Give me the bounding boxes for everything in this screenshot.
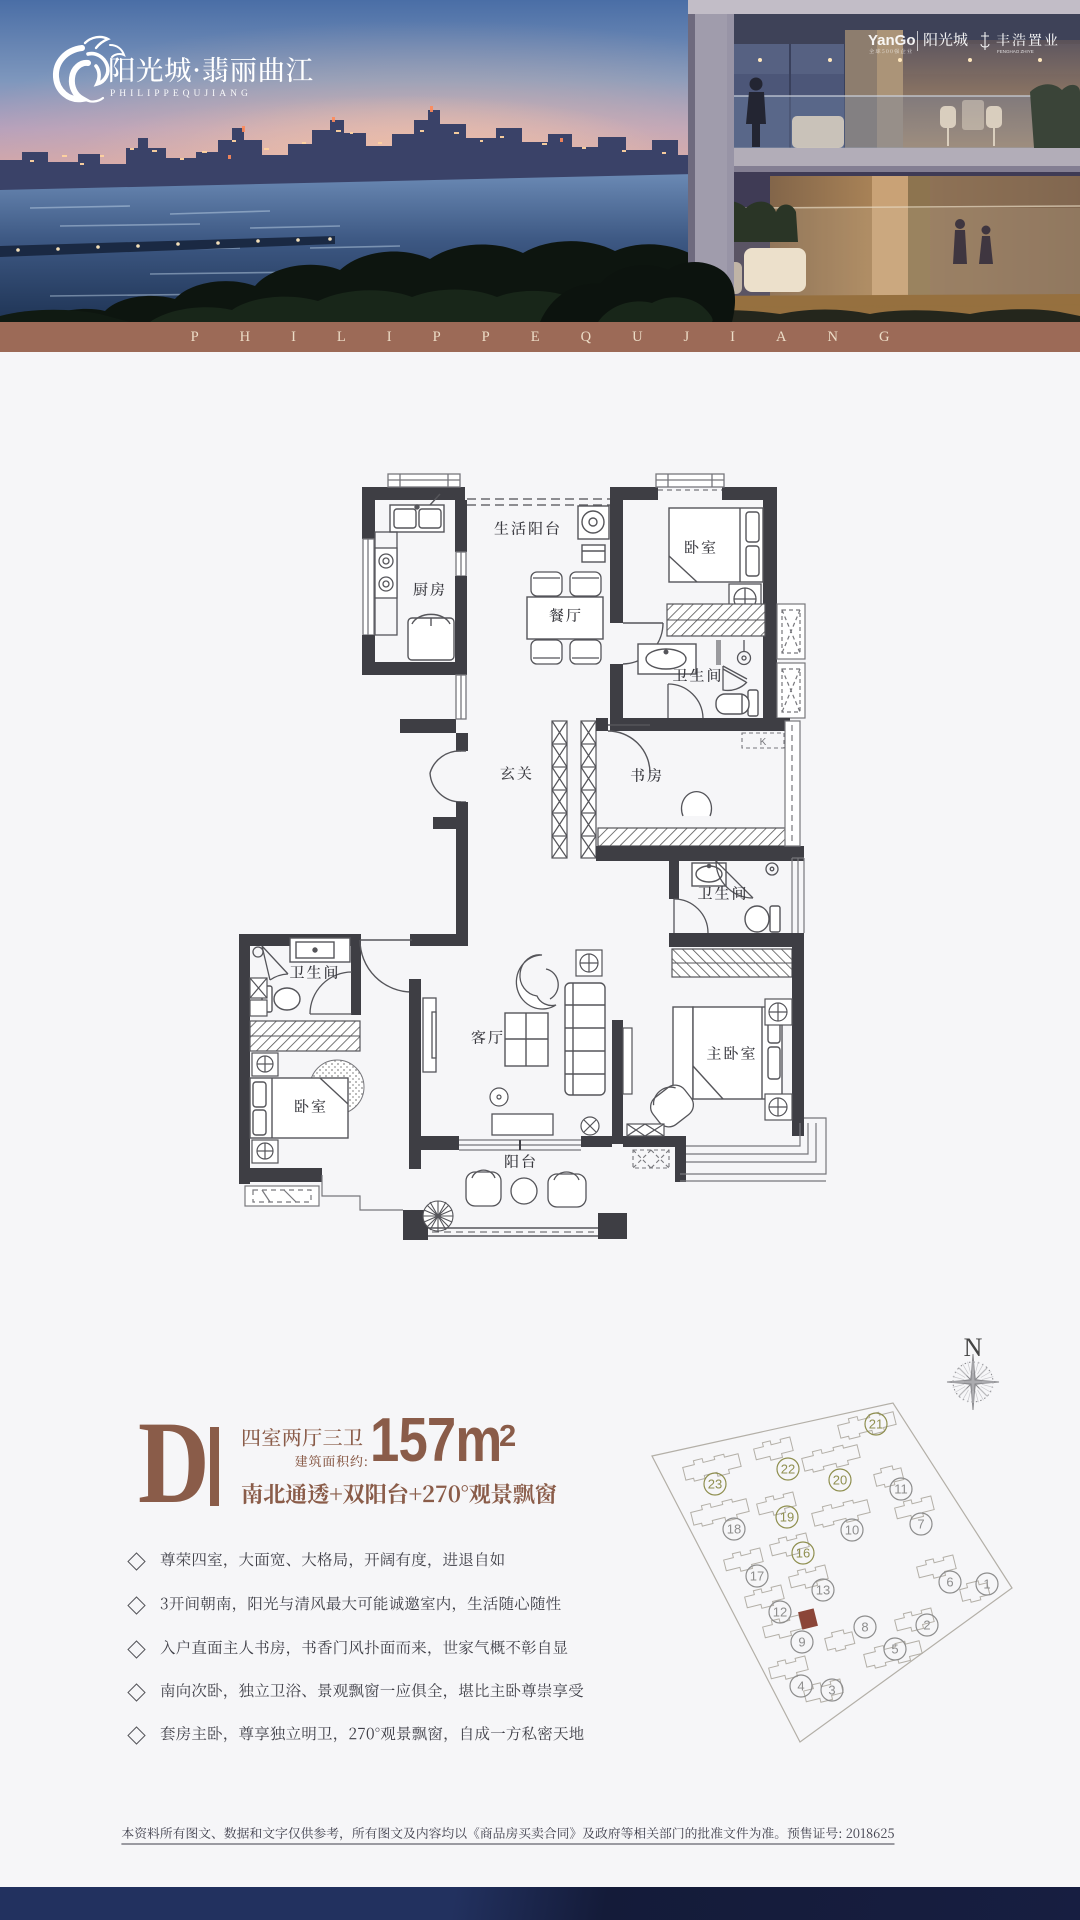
svg-text:K: K	[760, 737, 767, 748]
